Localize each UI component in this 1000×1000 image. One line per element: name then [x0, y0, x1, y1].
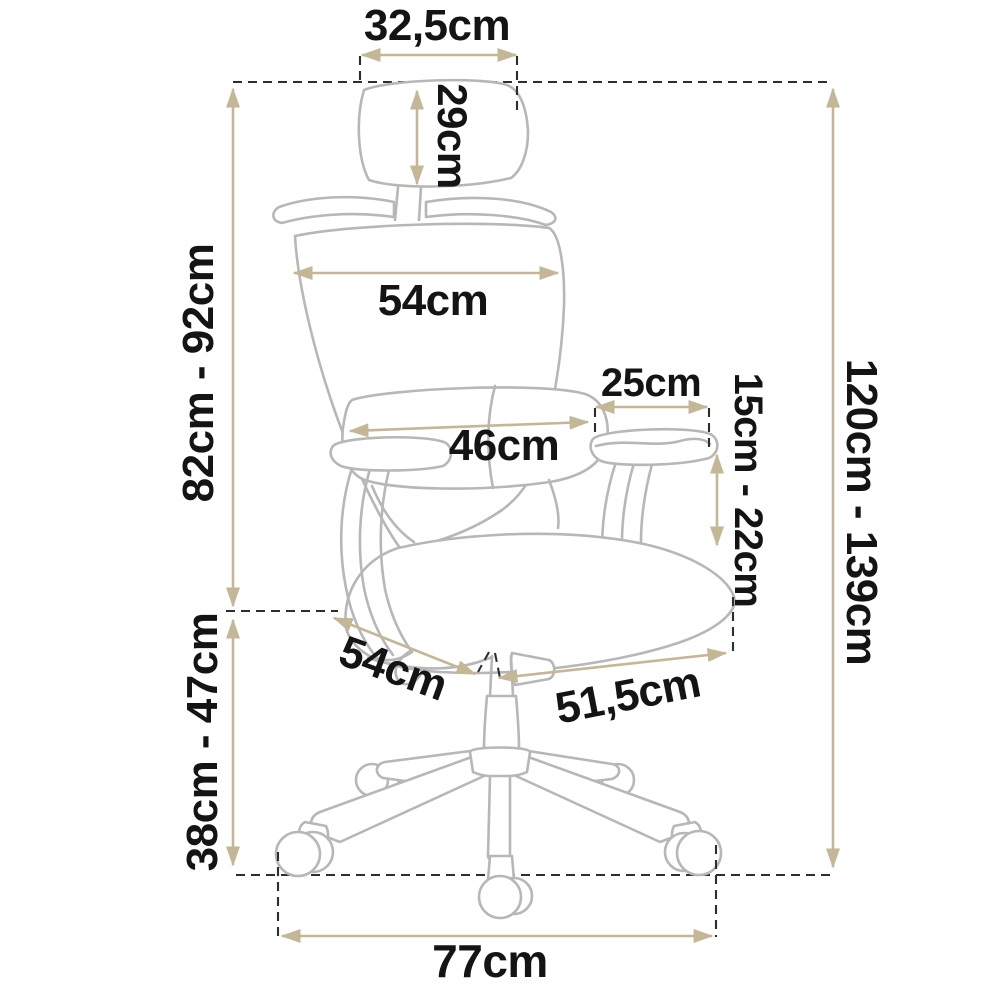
dim-base-width: 77cm	[432, 938, 548, 984]
dim-seat-height-range: 38cm - 47cm	[181, 613, 225, 872]
dim-headrest-height: 29cm	[431, 83, 473, 188]
chair-dimension-diagram: 32,5cm 29cm 54cm 82cm - 92cm 25cm 46cm 1…	[0, 0, 1000, 1000]
dim-backrest-width: 54cm	[378, 279, 489, 323]
dim-lumbar-width: 46cm	[449, 424, 560, 468]
dim-headrest-width: 32,5cm	[364, 4, 510, 48]
seat-center-extension-b	[495, 653, 500, 678]
dim-armrest-height-range: 15cm - 22cm	[728, 373, 768, 608]
dim-total-height-range: 120cm - 139cm	[839, 359, 883, 666]
dim-back-height-range: 82cm - 92cm	[177, 244, 221, 503]
seat-center-extension-a	[478, 652, 489, 672]
dim-armrest-pad-length: 25cm	[601, 363, 701, 403]
